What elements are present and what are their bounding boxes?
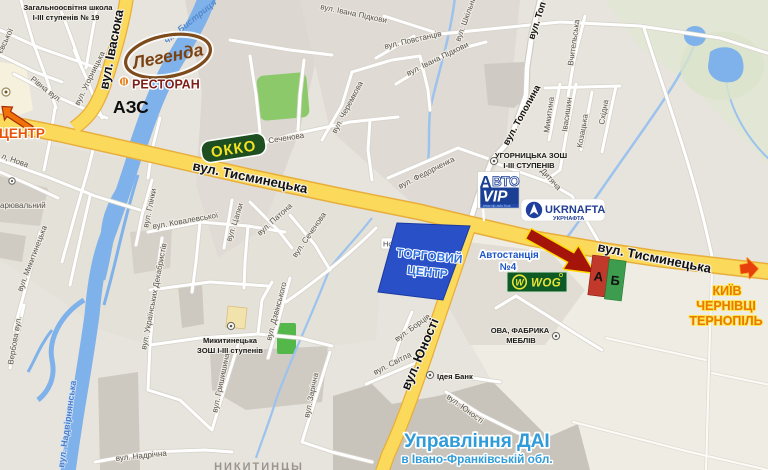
svg-text:ЧЕРНІВЦІ: ЧЕРНІВЦІ [696, 299, 756, 313]
svg-text:VIP: VIP [483, 189, 509, 206]
svg-text:ЗОШ І-ІІІ ступенів: ЗОШ І-ІІІ ступенів [197, 346, 263, 355]
svg-text:www.vip-avto.if.ua: www.vip-avto.if.ua [483, 204, 510, 208]
svg-text:ТЕРНОПІЛЬ: ТЕРНОПІЛЬ [689, 314, 762, 328]
svg-text:ВТО: ВТО [492, 174, 520, 189]
svg-text:НИКИТИНЦЫ: НИКИТИНЦЫ [214, 461, 304, 470]
svg-text:Автостанція: Автостанція [479, 250, 539, 261]
svg-text:РЕСТОРАН: РЕСТОРАН [132, 78, 200, 92]
svg-text:Микитинецька: Микитинецька [203, 336, 258, 345]
svg-text:арювальний: арювальний [0, 201, 46, 210]
svg-text:УГОРНИЦЬКА ЗОШ: УГОРНИЦЬКА ЗОШ [495, 151, 568, 160]
svg-text:Б: Б [610, 273, 621, 289]
svg-text:АЗС: АЗС [113, 97, 149, 117]
svg-text:WOG: WOG [531, 278, 561, 290]
svg-text:МЕБЛІВ: МЕБЛІВ [506, 336, 536, 345]
svg-text:КИЇВ: КИЇВ [712, 283, 741, 298]
svg-text:UKRNAFTA: UKRNAFTA [545, 204, 605, 216]
svg-text:ЦЕНТР: ЦЕНТР [0, 126, 45, 141]
svg-text:№4: №4 [500, 262, 517, 273]
svg-text:І-ІІІ СТУПЕНІВ: І-ІІІ СТУПЕНІВ [503, 161, 555, 170]
svg-text:в Івано-Франківській обл.: в Івано-Франківській обл. [401, 452, 552, 466]
svg-text:І-ІІІ ступенів № 19: І-ІІІ ступенів № 19 [33, 13, 100, 22]
svg-text:Управління ДАІ: Управління ДАІ [404, 431, 549, 452]
svg-text:ОВА, ФАБРИКА: ОВА, ФАБРИКА [491, 326, 550, 335]
svg-text:Загальноосвітня школа: Загальноосвітня школа [24, 3, 114, 12]
svg-text:Ідея Банк: Ідея Банк [437, 372, 473, 381]
svg-text:УКРНАФТА: УКРНАФТА [553, 216, 585, 222]
